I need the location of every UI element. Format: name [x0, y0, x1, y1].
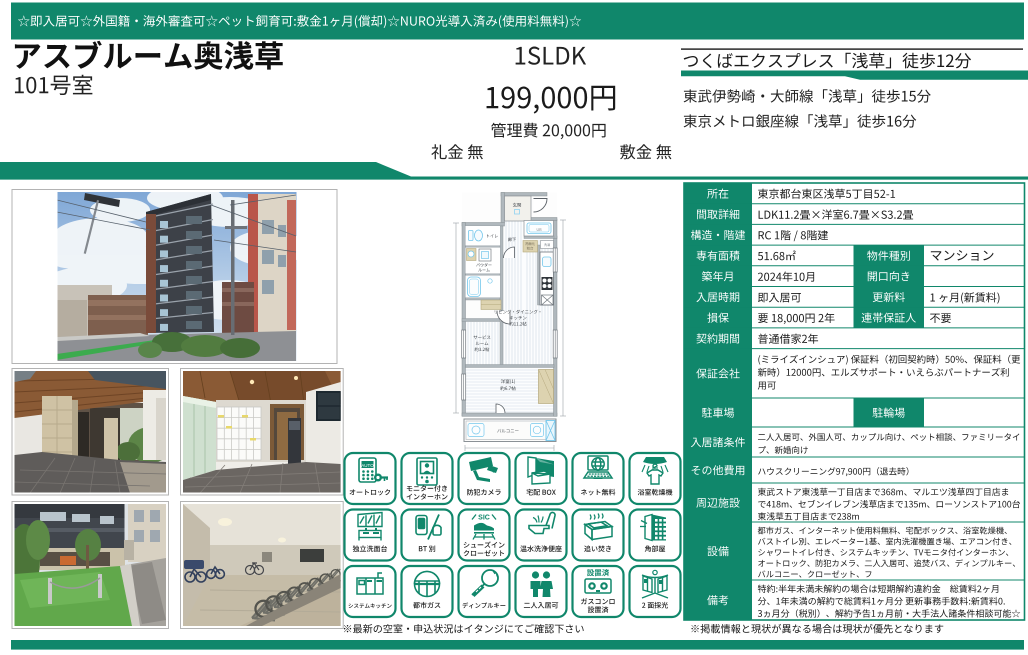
svg-text:SIC: SIC	[478, 515, 490, 522]
svg-text:AUTO: AUTO	[361, 463, 374, 468]
